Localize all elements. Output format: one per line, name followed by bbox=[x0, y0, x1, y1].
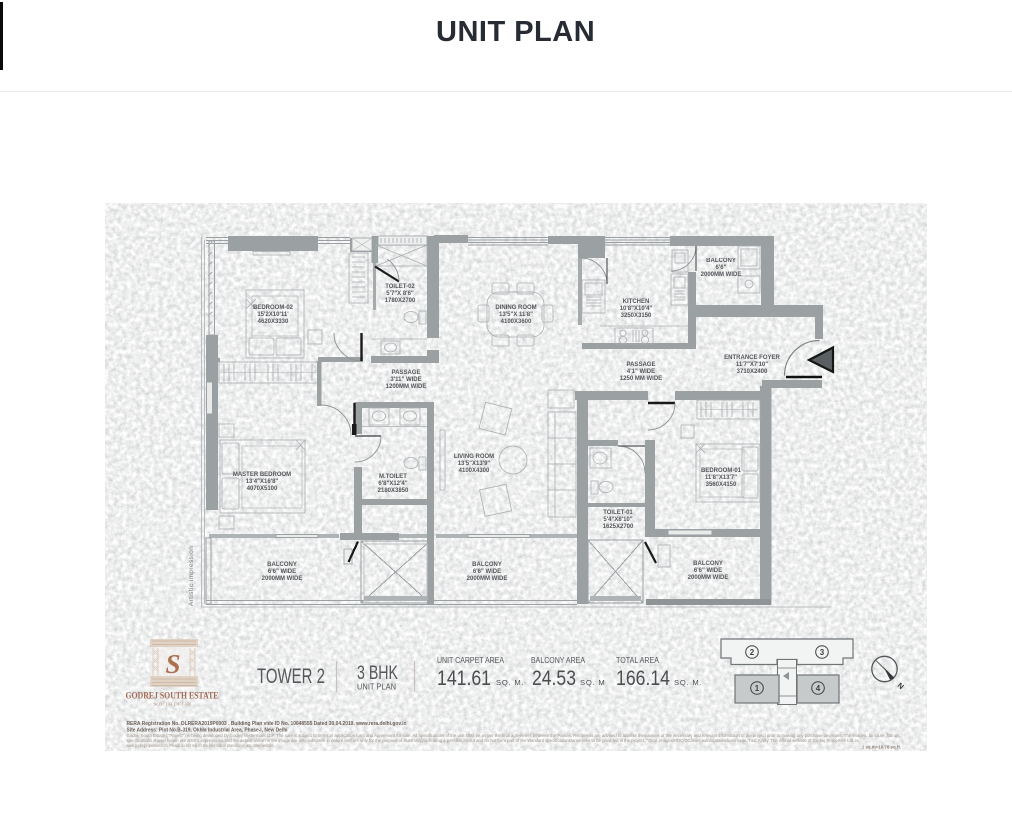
svg-text:13'4"X16'8": 13'4"X16'8" bbox=[246, 479, 279, 485]
svg-text:6'6" WIDE: 6'6" WIDE bbox=[268, 569, 296, 575]
svg-text:M.TOILET: M.TOILET bbox=[379, 474, 407, 480]
svg-text:PASSAGE: PASSAGE bbox=[392, 370, 421, 376]
svg-text:2000MM WIDE: 2000MM WIDE bbox=[262, 576, 303, 582]
svg-text:141.61: 141.61 bbox=[437, 667, 491, 690]
svg-text:LIVING ROOM: LIVING ROOM bbox=[454, 454, 494, 460]
svg-text:S: S bbox=[165, 649, 180, 679]
svg-text:2000MM WIDE: 2000MM WIDE bbox=[688, 575, 729, 581]
svg-text:BALCONY: BALCONY bbox=[693, 561, 723, 567]
svg-text:3560X4150: 3560X4150 bbox=[706, 482, 737, 488]
svg-text:6'8"X12'4": 6'8"X12'4" bbox=[378, 481, 407, 487]
svg-text:1200MM WIDE: 1200MM WIDE bbox=[386, 384, 427, 390]
svg-text:3'11" WIDE: 3'11" WIDE bbox=[390, 377, 421, 383]
svg-text:4100X4300: 4100X4300 bbox=[459, 468, 490, 474]
svg-text:3: 3 bbox=[820, 648, 825, 657]
svg-text:1: 1 bbox=[755, 684, 760, 693]
svg-text:BALCONY: BALCONY bbox=[267, 562, 297, 568]
svg-text:SOUTH DELHI: SOUTH DELHI bbox=[153, 702, 192, 707]
svg-text:ENTRANCE FOYER: ENTRANCE FOYER bbox=[724, 355, 780, 361]
svg-text:BEDROOM-02: BEDROOM-02 bbox=[253, 305, 294, 311]
svg-text:PASSAGE: PASSAGE bbox=[627, 362, 656, 368]
svg-text:10'8"X10'4": 10'8"X10'4" bbox=[620, 306, 653, 312]
svg-text:13'5"X 11'8": 13'5"X 11'8" bbox=[499, 312, 533, 318]
svg-text:BALCONY: BALCONY bbox=[472, 562, 502, 568]
svg-text:4620X3330: 4620X3330 bbox=[258, 319, 289, 325]
svg-text:1 sq.m=10.76 sq.ft.: 1 sq.m=10.76 sq.ft. bbox=[862, 745, 901, 750]
svg-text:11'7"X7'10": 11'7"X7'10" bbox=[736, 362, 768, 368]
svg-text:www.godrejproperties.com. Plea: www.godrejproperties.com. Please do not … bbox=[127, 743, 275, 748]
svg-text:TOILET-01: TOILET-01 bbox=[603, 510, 633, 516]
svg-text:2000MM WIDE: 2000MM WIDE bbox=[701, 272, 742, 278]
svg-text:24.53: 24.53 bbox=[532, 667, 576, 690]
svg-text:UNIT CARPET AREA: UNIT CARPET AREA bbox=[437, 656, 504, 665]
svg-text:5'4"X8'10": 5'4"X8'10" bbox=[603, 517, 632, 523]
svg-text:RERA Registration No. DLRERA20: RERA Registration No. DLRERA2019P0003 . … bbox=[127, 721, 407, 727]
svg-text:BALCONY AREA: BALCONY AREA bbox=[531, 656, 585, 665]
svg-text:13'5"X13'9": 13'5"X13'9" bbox=[458, 461, 491, 467]
svg-text:6'6" WIDE: 6'6" WIDE bbox=[694, 568, 722, 574]
svg-text:TOILET-02: TOILET-02 bbox=[385, 284, 415, 290]
svg-text:15'2X10'11': 15'2X10'11' bbox=[257, 312, 289, 318]
svg-text:4: 4 bbox=[816, 684, 821, 693]
svg-text:Artistic impression: Artistic impression bbox=[188, 546, 195, 606]
svg-text:TOTAL AREA: TOTAL AREA bbox=[616, 656, 659, 665]
svg-text:166.14: 166.14 bbox=[616, 667, 670, 690]
svg-text:KITCHEN: KITCHEN bbox=[623, 299, 650, 305]
svg-text:BEDROOM-01: BEDROOM-01 bbox=[701, 468, 742, 474]
svg-text:MASTER BEDROOM: MASTER BEDROOM bbox=[233, 472, 291, 478]
svg-text:1780X2700: 1780X2700 bbox=[385, 298, 416, 304]
svg-text:3250X3150: 3250X3150 bbox=[621, 313, 652, 319]
svg-text:GODREJ SOUTH ESTATE: GODREJ SOUTH ESTATE bbox=[126, 691, 219, 701]
svg-text:3710X2400: 3710X2400 bbox=[737, 369, 768, 375]
svg-text:1625X2700: 1625X2700 bbox=[603, 524, 634, 530]
svg-text:1250 MM WIDE: 1250 MM WIDE bbox=[620, 376, 662, 382]
svg-text:6'6": 6'6" bbox=[716, 265, 727, 271]
svg-text:SQ. M.: SQ. M. bbox=[496, 678, 524, 687]
svg-text:2180X3850: 2180X3850 bbox=[378, 488, 409, 494]
svg-text:5'7"X 8'6": 5'7"X 8'6" bbox=[386, 291, 414, 297]
svg-text:4070X5100: 4070X5100 bbox=[247, 486, 278, 492]
svg-text:DINING ROOM: DINING ROOM bbox=[495, 305, 536, 311]
svg-text:4'1" WIDE: 4'1" WIDE bbox=[627, 369, 655, 375]
svg-text:4100X3600: 4100X3600 bbox=[501, 319, 532, 325]
svg-text:UNIT PLAN: UNIT PLAN bbox=[357, 682, 396, 692]
svg-text:2000MM WIDE: 2000MM WIDE bbox=[467, 576, 508, 582]
svg-text:TOWER 2: TOWER 2 bbox=[257, 665, 325, 688]
svg-text:2: 2 bbox=[750, 648, 755, 657]
svg-text:BALCONY: BALCONY bbox=[706, 258, 736, 264]
svg-text:SQ. M: SQ. M bbox=[580, 678, 606, 687]
svg-text:6'6" WIDE: 6'6" WIDE bbox=[473, 569, 501, 575]
svg-text:SQ. M.: SQ. M. bbox=[674, 678, 702, 687]
svg-text:11'8"X13'7": 11'8"X13'7" bbox=[705, 475, 737, 481]
